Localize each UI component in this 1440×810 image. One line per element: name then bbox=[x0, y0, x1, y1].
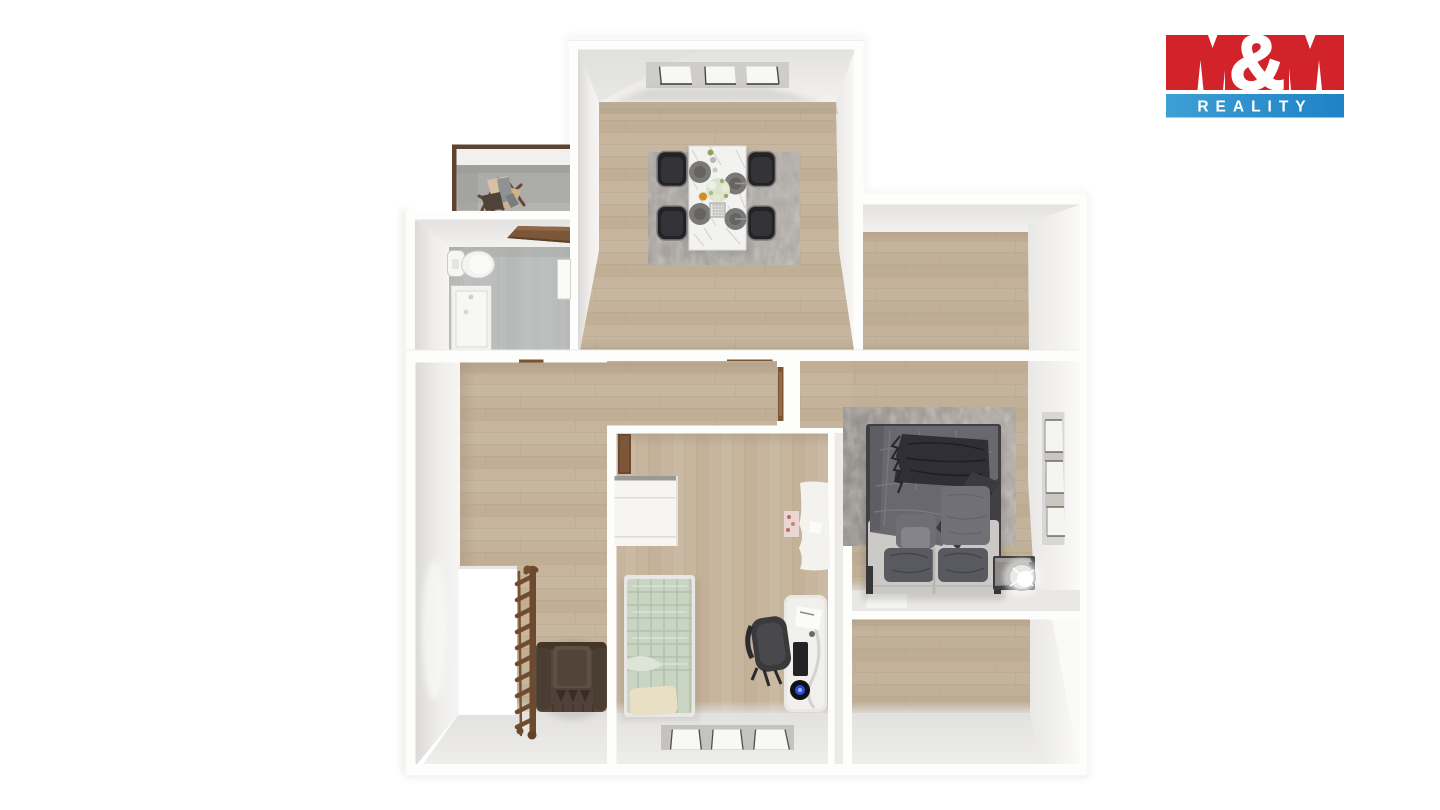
svg-text:&: & bbox=[1229, 20, 1285, 106]
svg-text:REALITY: REALITY bbox=[1197, 99, 1312, 116]
